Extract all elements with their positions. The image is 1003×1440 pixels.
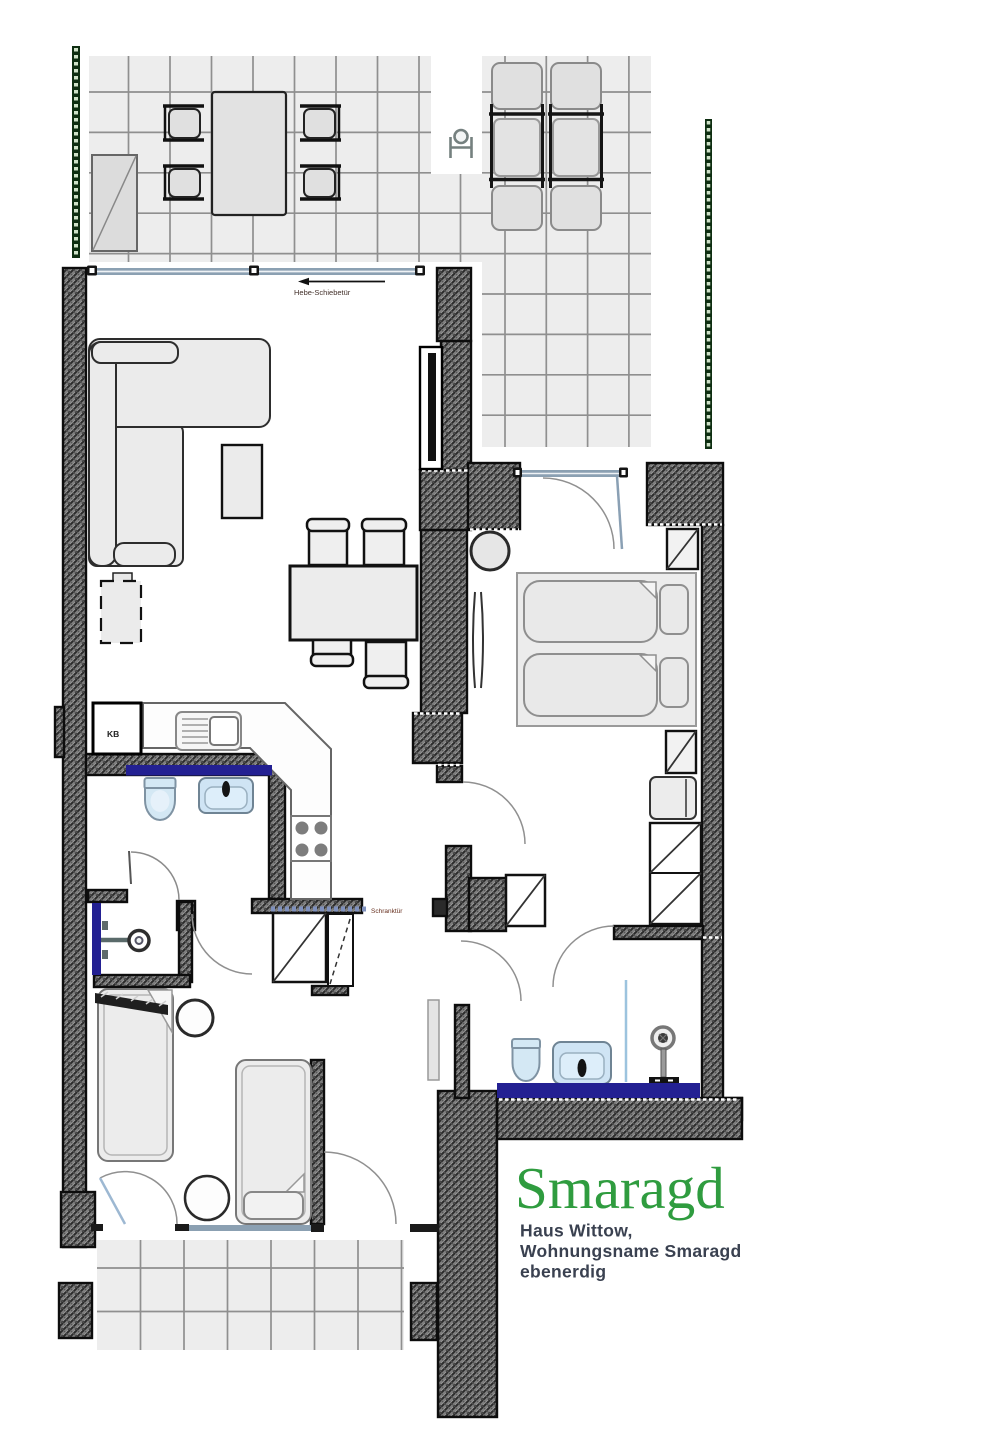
svg-text:Hebe-Schiebetür: Hebe-Schiebetür [294,288,351,297]
svg-text:Smaragd: Smaragd [515,1155,725,1221]
svg-text:ebenerdig: ebenerdig [520,1262,606,1282]
svg-text:Haus Wittow,: Haus Wittow, [520,1221,633,1241]
svg-text:Wohnungsname Smaragd: Wohnungsname Smaragd [520,1241,742,1261]
svg-text:Schranktür: Schranktür [371,908,403,915]
svg-text:KB: KB [107,729,119,739]
